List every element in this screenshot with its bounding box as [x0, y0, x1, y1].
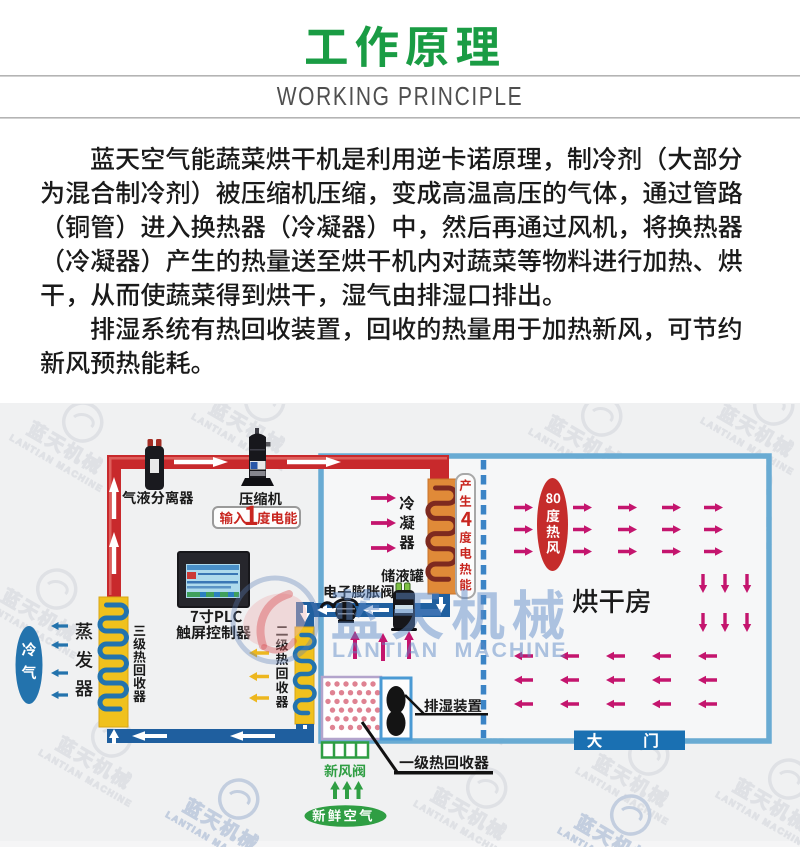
svg-text:LANTIAN MACHINE: LANTIAN MACHINE [332, 638, 567, 662]
svg-text:WORKING PRINCIPLE: WORKING PRINCIPLE [277, 83, 523, 112]
